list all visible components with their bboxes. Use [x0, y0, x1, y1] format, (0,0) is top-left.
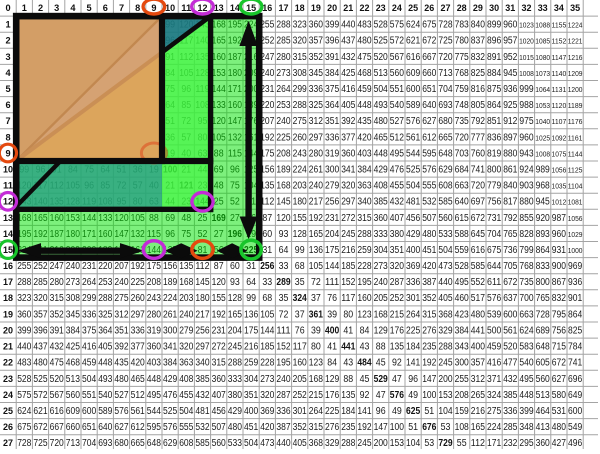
svg-text:400: 400: [406, 245, 421, 256]
svg-text:323: 323: [293, 20, 308, 31]
svg-text:576: 576: [163, 422, 178, 433]
svg-text:352: 352: [309, 52, 323, 63]
svg-text:184: 184: [341, 406, 356, 417]
svg-text:756: 756: [552, 325, 567, 336]
svg-text:93: 93: [279, 229, 289, 240]
svg-text:13: 13: [214, 3, 224, 13]
svg-text:129: 129: [374, 325, 389, 336]
svg-text:180: 180: [293, 197, 308, 208]
svg-text:343: 343: [455, 342, 470, 353]
svg-text:387: 387: [276, 422, 290, 433]
svg-text:480: 480: [33, 358, 48, 369]
svg-text:560: 560: [438, 213, 453, 224]
svg-text:319: 319: [147, 325, 162, 336]
svg-text:203: 203: [293, 181, 308, 192]
svg-text:640: 640: [455, 197, 470, 208]
svg-text:204: 204: [228, 325, 243, 336]
svg-text:245: 245: [228, 342, 243, 353]
svg-text:988: 988: [519, 100, 534, 111]
svg-text:760: 760: [471, 148, 486, 159]
svg-text:504: 504: [244, 438, 259, 449]
svg-text:480: 480: [552, 422, 567, 433]
svg-text:544: 544: [406, 148, 421, 159]
svg-text:272: 272: [212, 342, 226, 353]
svg-text:192: 192: [131, 261, 145, 272]
svg-text:380: 380: [390, 229, 405, 240]
svg-text:945: 945: [536, 197, 551, 208]
svg-text:480: 480: [422, 229, 437, 240]
svg-text:288: 288: [438, 342, 453, 353]
svg-text:500: 500: [487, 325, 502, 336]
svg-text:39: 39: [311, 325, 321, 336]
svg-text:416: 416: [487, 358, 502, 369]
svg-text:525: 525: [374, 36, 389, 47]
svg-text:735: 735: [519, 277, 534, 288]
svg-text:68: 68: [295, 261, 305, 272]
svg-text:705: 705: [503, 261, 518, 272]
svg-text:384: 384: [325, 68, 340, 79]
svg-text:435: 435: [114, 358, 129, 369]
svg-text:451: 451: [244, 422, 259, 433]
svg-text:300: 300: [455, 358, 470, 369]
svg-text:288: 288: [98, 293, 113, 304]
svg-text:6: 6: [5, 100, 10, 110]
svg-text:49: 49: [408, 390, 418, 401]
svg-text:9: 9: [5, 148, 10, 158]
svg-text:693: 693: [438, 100, 453, 111]
svg-text:533: 533: [438, 229, 453, 240]
svg-text:51: 51: [408, 422, 418, 433]
svg-text:468: 468: [357, 68, 372, 79]
svg-text:320: 320: [293, 36, 308, 47]
svg-text:385: 385: [503, 390, 518, 401]
svg-text:168: 168: [276, 181, 291, 192]
svg-text:832: 832: [552, 293, 566, 304]
svg-text:540: 540: [519, 358, 534, 369]
svg-text:17: 17: [3, 277, 13, 287]
svg-text:420: 420: [422, 261, 437, 272]
svg-text:33: 33: [538, 3, 548, 13]
svg-text:475: 475: [357, 52, 372, 63]
svg-text:153: 153: [438, 390, 453, 401]
svg-text:112: 112: [471, 438, 485, 449]
svg-text:195: 195: [357, 277, 372, 288]
svg-text:168: 168: [179, 277, 194, 288]
svg-text:696: 696: [568, 374, 583, 385]
svg-text:625: 625: [406, 406, 421, 417]
svg-text:23: 23: [376, 3, 386, 13]
svg-text:729: 729: [438, 438, 453, 449]
svg-text:527: 527: [114, 390, 128, 401]
svg-text:147: 147: [374, 422, 388, 433]
svg-text:549: 549: [568, 422, 583, 433]
svg-text:287: 287: [276, 390, 290, 401]
svg-text:351: 351: [244, 390, 259, 401]
svg-text:192: 192: [212, 309, 226, 320]
svg-text:21: 21: [3, 342, 13, 352]
svg-text:259: 259: [357, 245, 372, 256]
svg-text:435: 435: [357, 116, 372, 127]
svg-text:432: 432: [390, 197, 404, 208]
svg-text:108: 108: [455, 422, 470, 433]
svg-text:351: 351: [325, 116, 340, 127]
svg-text:10: 10: [165, 3, 175, 13]
svg-text:952: 952: [503, 52, 517, 63]
svg-text:72: 72: [279, 309, 289, 320]
svg-text:495: 495: [455, 277, 470, 288]
svg-text:11: 11: [3, 181, 13, 191]
svg-text:369: 369: [406, 261, 421, 272]
svg-text:72: 72: [311, 277, 321, 288]
svg-text:560: 560: [536, 374, 551, 385]
svg-text:624: 624: [17, 406, 32, 417]
svg-text:943: 943: [519, 148, 534, 159]
svg-text:495: 495: [519, 374, 534, 385]
svg-text:440: 440: [276, 438, 291, 449]
svg-text:561: 561: [406, 132, 421, 143]
svg-text:672: 672: [422, 36, 436, 47]
svg-text:33: 33: [279, 261, 289, 272]
svg-text:304: 304: [374, 245, 389, 256]
svg-text:368: 368: [438, 309, 453, 320]
svg-text:111: 111: [276, 325, 291, 336]
svg-text:399: 399: [325, 20, 340, 31]
svg-text:480: 480: [374, 116, 389, 127]
svg-text:208: 208: [147, 277, 162, 288]
svg-text:111: 111: [325, 277, 340, 288]
svg-text:507: 507: [422, 213, 436, 224]
svg-text:363: 363: [357, 181, 372, 192]
svg-text:22: 22: [3, 358, 13, 368]
svg-text:720: 720: [50, 438, 65, 449]
svg-text:555: 555: [422, 181, 437, 192]
svg-text:240: 240: [276, 374, 291, 385]
svg-text:215: 215: [309, 390, 324, 401]
svg-text:496: 496: [568, 438, 583, 449]
svg-text:512: 512: [390, 132, 404, 143]
svg-text:741: 741: [568, 358, 583, 369]
svg-text:156: 156: [163, 261, 178, 272]
svg-text:525: 525: [406, 165, 421, 176]
svg-text:37: 37: [311, 293, 321, 304]
svg-text:175: 175: [325, 245, 340, 256]
svg-text:240: 240: [374, 277, 389, 288]
svg-text:153: 153: [390, 438, 405, 449]
svg-text:352: 352: [50, 309, 64, 320]
svg-text:400: 400: [471, 342, 486, 353]
svg-text:312: 312: [309, 116, 323, 127]
svg-text:19: 19: [3, 309, 13, 319]
svg-text:117: 117: [293, 342, 307, 353]
svg-text:759: 759: [455, 84, 470, 95]
svg-text:375: 375: [82, 325, 97, 336]
svg-text:23: 23: [3, 374, 13, 384]
svg-text:612: 612: [131, 422, 145, 433]
svg-text:891: 891: [487, 52, 502, 63]
svg-text:285: 285: [276, 36, 291, 47]
svg-text:680: 680: [114, 438, 129, 449]
svg-text:275: 275: [114, 293, 129, 304]
svg-text:840: 840: [503, 181, 518, 192]
svg-text:741: 741: [471, 165, 486, 176]
svg-text:1224: 1224: [568, 21, 583, 30]
svg-text:308: 308: [66, 293, 81, 304]
svg-text:600: 600: [503, 309, 518, 320]
svg-text:588: 588: [455, 229, 470, 240]
svg-text:352: 352: [293, 422, 307, 433]
svg-text:27: 27: [441, 3, 451, 13]
svg-text:528: 528: [17, 374, 32, 385]
svg-text:575: 575: [17, 390, 32, 401]
svg-text:287: 287: [390, 277, 404, 288]
svg-text:651: 651: [422, 84, 437, 95]
svg-text:735: 735: [455, 116, 470, 127]
svg-text:336: 336: [406, 277, 421, 288]
svg-text:26: 26: [424, 3, 434, 13]
svg-text:441: 441: [471, 325, 486, 336]
svg-text:4: 4: [5, 68, 11, 78]
svg-text:60: 60: [262, 229, 272, 240]
svg-text:315: 315: [50, 293, 65, 304]
svg-text:7: 7: [5, 116, 10, 126]
svg-text:240: 240: [114, 277, 129, 288]
svg-text:400: 400: [325, 325, 340, 336]
svg-text:295: 295: [519, 438, 534, 449]
svg-text:260: 260: [293, 132, 308, 143]
svg-text:240: 240: [309, 181, 324, 192]
svg-text:1209: 1209: [568, 69, 583, 78]
svg-text:561: 561: [131, 406, 146, 417]
svg-text:168: 168: [309, 374, 324, 385]
svg-text:319: 319: [325, 148, 340, 159]
svg-text:308: 308: [293, 68, 308, 79]
svg-text:341: 341: [163, 342, 178, 353]
svg-text:1085: 1085: [535, 37, 550, 46]
svg-text:360: 360: [374, 213, 389, 224]
svg-text:403: 403: [357, 148, 372, 159]
svg-text:715: 715: [552, 342, 567, 353]
svg-text:448: 448: [98, 358, 113, 369]
svg-text:145: 145: [195, 277, 210, 288]
svg-text:4: 4: [70, 3, 76, 13]
svg-text:645: 645: [471, 229, 486, 240]
svg-text:160: 160: [293, 358, 308, 369]
svg-text:448: 448: [519, 390, 534, 401]
svg-text:480: 480: [228, 422, 243, 433]
svg-text:1064: 1064: [535, 85, 550, 94]
svg-text:325: 325: [309, 100, 324, 111]
svg-text:667: 667: [50, 422, 64, 433]
svg-text:351: 351: [114, 325, 129, 336]
svg-text:29: 29: [473, 3, 483, 13]
svg-text:7: 7: [119, 3, 124, 13]
svg-text:11: 11: [181, 3, 191, 13]
svg-text:235: 235: [422, 342, 437, 353]
svg-text:1081: 1081: [568, 198, 583, 207]
svg-text:340: 340: [357, 197, 372, 208]
svg-text:612: 612: [422, 132, 436, 143]
svg-text:357: 357: [309, 36, 323, 47]
svg-text:27: 27: [3, 438, 13, 448]
svg-text:368: 368: [309, 438, 324, 449]
svg-text:864: 864: [536, 245, 551, 256]
svg-text:475: 475: [50, 358, 65, 369]
svg-text:672: 672: [503, 277, 517, 288]
svg-text:440: 440: [438, 277, 453, 288]
svg-text:975: 975: [519, 116, 534, 127]
svg-text:336: 336: [276, 406, 291, 417]
svg-text:3: 3: [5, 52, 10, 62]
svg-text:360: 360: [212, 374, 227, 385]
svg-text:336: 336: [325, 132, 340, 143]
svg-text:312: 312: [114, 309, 128, 320]
svg-text:1012: 1012: [552, 198, 567, 207]
svg-text:1029: 1029: [568, 230, 583, 239]
svg-text:504: 504: [406, 181, 421, 192]
svg-text:399: 399: [519, 406, 534, 417]
svg-text:301: 301: [293, 406, 308, 417]
svg-text:392: 392: [114, 342, 128, 353]
svg-text:224: 224: [487, 422, 502, 433]
svg-text:504: 504: [179, 406, 194, 417]
svg-text:567: 567: [50, 390, 64, 401]
svg-text:245: 245: [438, 358, 453, 369]
svg-text:624: 624: [519, 325, 534, 336]
svg-text:576: 576: [487, 293, 502, 304]
svg-text:175: 175: [147, 261, 162, 272]
svg-text:297: 297: [195, 342, 209, 353]
svg-text:15: 15: [3, 245, 13, 255]
svg-text:792: 792: [503, 213, 517, 224]
svg-text:884: 884: [487, 68, 502, 79]
svg-text:135: 135: [390, 342, 405, 353]
svg-text:120: 120: [276, 213, 291, 224]
svg-text:329: 329: [325, 438, 340, 449]
svg-text:205: 205: [374, 293, 389, 304]
svg-text:273: 273: [260, 374, 275, 385]
svg-text:16: 16: [3, 261, 13, 271]
svg-text:616: 616: [50, 406, 65, 417]
svg-text:320: 320: [179, 342, 194, 353]
svg-text:30: 30: [489, 3, 499, 13]
svg-text:288: 288: [228, 358, 243, 369]
svg-text:627: 627: [114, 422, 128, 433]
svg-text:1092: 1092: [552, 133, 567, 142]
svg-text:528: 528: [455, 261, 470, 272]
svg-text:1144: 1144: [568, 149, 583, 158]
svg-text:651: 651: [82, 422, 97, 433]
svg-text:5: 5: [5, 84, 10, 94]
svg-text:429: 429: [163, 374, 178, 385]
svg-text:561: 561: [503, 325, 518, 336]
svg-text:425: 425: [341, 68, 356, 79]
svg-text:629: 629: [163, 438, 178, 449]
svg-text:375: 375: [325, 84, 340, 95]
svg-text:533: 533: [228, 438, 243, 449]
svg-text:123: 123: [357, 309, 372, 320]
svg-text:805: 805: [471, 100, 486, 111]
svg-text:684: 684: [455, 165, 470, 176]
svg-text:264: 264: [406, 309, 421, 320]
svg-text:64: 64: [246, 277, 256, 288]
svg-text:780: 780: [455, 36, 470, 47]
svg-text:208: 208: [276, 148, 291, 159]
svg-text:253: 253: [276, 100, 291, 111]
svg-text:400: 400: [244, 406, 259, 417]
svg-text:87: 87: [214, 261, 224, 272]
svg-text:152: 152: [276, 342, 290, 353]
svg-text:243: 243: [293, 148, 308, 159]
svg-text:155: 155: [212, 293, 227, 304]
svg-text:465: 465: [131, 374, 146, 385]
svg-text:275: 275: [293, 116, 308, 127]
svg-text:725: 725: [33, 438, 48, 449]
svg-text:275: 275: [487, 406, 502, 417]
svg-text:2: 2: [5, 36, 10, 46]
svg-text:403: 403: [147, 358, 162, 369]
svg-text:609: 609: [406, 68, 421, 79]
svg-text:408: 408: [179, 374, 194, 385]
svg-text:371: 371: [487, 374, 502, 385]
svg-text:969: 969: [568, 261, 583, 272]
svg-text:39: 39: [327, 309, 337, 320]
svg-text:1073: 1073: [535, 69, 550, 78]
svg-text:129: 129: [325, 374, 340, 385]
svg-text:12: 12: [198, 3, 208, 13]
svg-text:88: 88: [343, 374, 353, 385]
svg-text:765: 765: [536, 293, 551, 304]
svg-text:413: 413: [536, 422, 551, 433]
svg-text:216: 216: [244, 342, 259, 353]
svg-text:432: 432: [341, 52, 355, 63]
svg-text:1140: 1140: [552, 69, 567, 78]
svg-text:560: 560: [390, 68, 405, 79]
svg-text:408: 408: [374, 181, 389, 192]
svg-text:21: 21: [343, 3, 353, 13]
svg-text:315: 315: [212, 358, 227, 369]
svg-text:728: 728: [438, 20, 453, 31]
svg-text:476: 476: [390, 165, 405, 176]
svg-text:600: 600: [82, 406, 97, 417]
svg-text:192: 192: [422, 358, 436, 369]
svg-text:220: 220: [98, 261, 113, 272]
svg-text:851: 851: [487, 116, 502, 127]
svg-text:285: 285: [33, 277, 48, 288]
svg-text:440: 440: [17, 342, 32, 353]
svg-text:155: 155: [293, 213, 308, 224]
svg-text:176: 176: [325, 390, 340, 401]
svg-text:8: 8: [135, 3, 140, 13]
svg-text:225: 225: [406, 325, 421, 336]
svg-text:231: 231: [325, 213, 340, 224]
svg-text:1025: 1025: [535, 133, 550, 142]
svg-text:507: 507: [212, 422, 226, 433]
svg-text:665: 665: [438, 132, 453, 143]
svg-text:384: 384: [357, 165, 372, 176]
svg-text:855: 855: [519, 213, 534, 224]
svg-text:396: 396: [33, 325, 48, 336]
svg-text:289: 289: [276, 277, 291, 288]
svg-text:616: 616: [406, 52, 421, 63]
svg-text:476: 476: [163, 390, 178, 401]
svg-text:756: 756: [487, 197, 502, 208]
svg-text:26: 26: [3, 422, 13, 432]
svg-text:76: 76: [327, 293, 337, 304]
svg-text:369: 369: [260, 406, 275, 417]
svg-text:299: 299: [82, 293, 97, 304]
svg-text:280: 280: [50, 277, 65, 288]
svg-text:217: 217: [195, 309, 209, 320]
